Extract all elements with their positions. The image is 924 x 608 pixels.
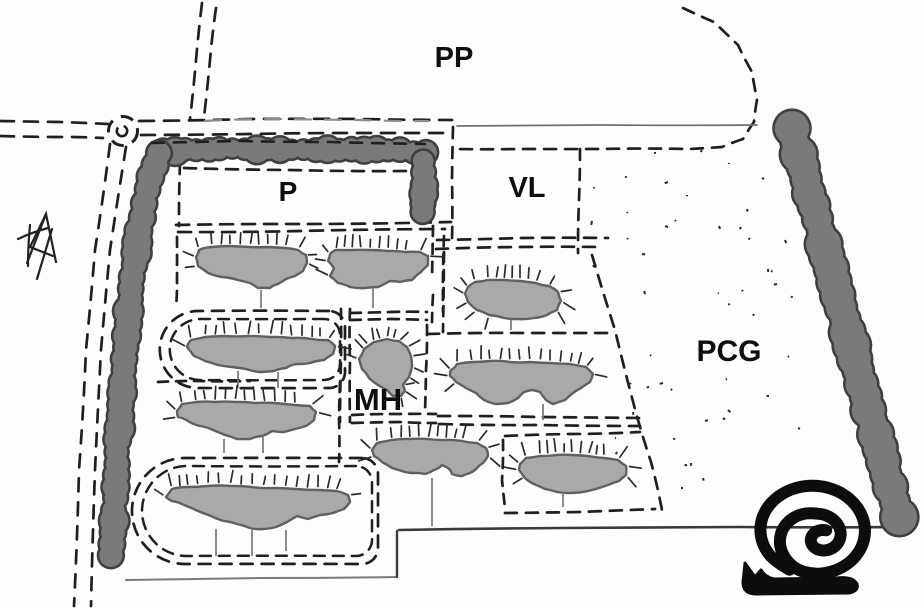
svg-text:P: P [279, 176, 298, 207]
svg-text:MH: MH [354, 382, 402, 417]
svg-text:PCG: PCG [696, 335, 761, 368]
svg-text:VL: VL [508, 172, 545, 204]
svg-text:PP: PP [435, 42, 474, 74]
